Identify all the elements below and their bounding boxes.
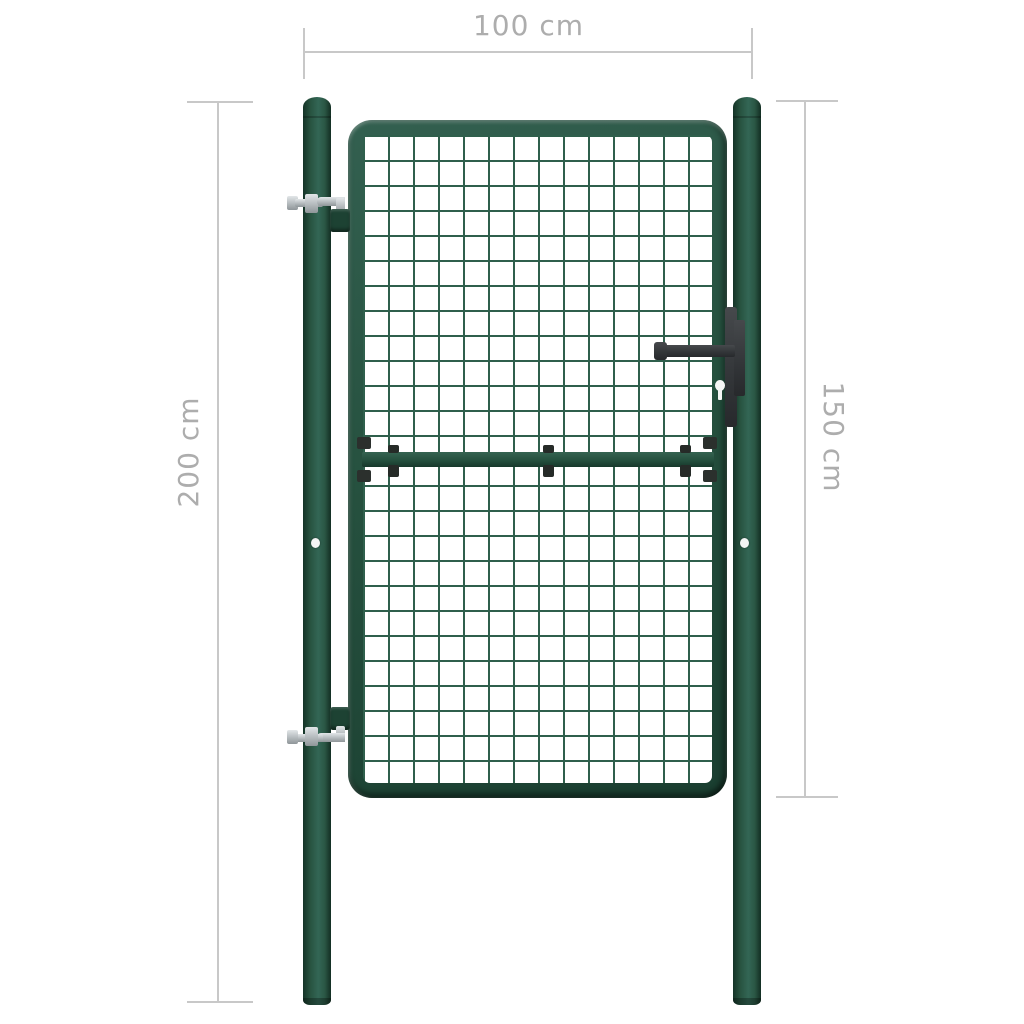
strike-plate bbox=[734, 320, 745, 396]
right-post-cap-seam bbox=[733, 116, 761, 118]
width-dimension-tick-right bbox=[751, 28, 753, 79]
product-dimension-diagram: 100 cm 200 cm 150 cm bbox=[0, 0, 1024, 1024]
post-height-dimension-line bbox=[217, 102, 219, 1003]
gate-height-dimension-label: 150 cm bbox=[819, 381, 847, 492]
keyhole-stem bbox=[718, 388, 722, 400]
gate-height-dimension-tick-bottom bbox=[776, 796, 838, 798]
top-hinge-sleeve bbox=[330, 209, 350, 232]
rail-end-bracket bbox=[357, 470, 371, 482]
rail-end-bracket bbox=[357, 437, 371, 449]
rail-clip bbox=[388, 465, 399, 477]
width-dimension-label: 100 cm bbox=[304, 12, 753, 40]
rail-clip bbox=[680, 465, 691, 477]
post-height-dimension-label: 200 cm bbox=[175, 396, 203, 507]
left-fence-post bbox=[303, 97, 331, 1005]
rail-clip bbox=[680, 445, 691, 453]
rail-clip bbox=[543, 465, 554, 477]
gate-middle-rail bbox=[362, 452, 714, 467]
rail-end-bracket bbox=[703, 470, 717, 482]
gate-height-dimension-line bbox=[804, 101, 806, 798]
rail-clip bbox=[543, 445, 554, 453]
gate-handle bbox=[657, 345, 735, 357]
width-dimension-tick-left bbox=[303, 28, 305, 79]
width-dimension-line bbox=[304, 51, 753, 53]
gate-height-dimension-tick-top bbox=[776, 100, 838, 102]
rail-clip bbox=[388, 445, 399, 453]
right-fence-post bbox=[733, 97, 761, 1005]
top-hinge-nut bbox=[305, 194, 318, 213]
left-post-cap-seam bbox=[303, 116, 331, 118]
right-post-bolt-hole bbox=[740, 538, 749, 548]
handle-end-cap bbox=[654, 342, 667, 360]
bottom-hinge-bolt-head bbox=[287, 730, 298, 744]
bottom-hinge-nut bbox=[305, 727, 318, 746]
rail-end-bracket bbox=[703, 437, 717, 449]
post-height-dimension-tick-top bbox=[187, 101, 253, 103]
left-post-bolt-hole bbox=[311, 538, 320, 548]
post-height-dimension-tick-bottom bbox=[187, 1001, 253, 1003]
